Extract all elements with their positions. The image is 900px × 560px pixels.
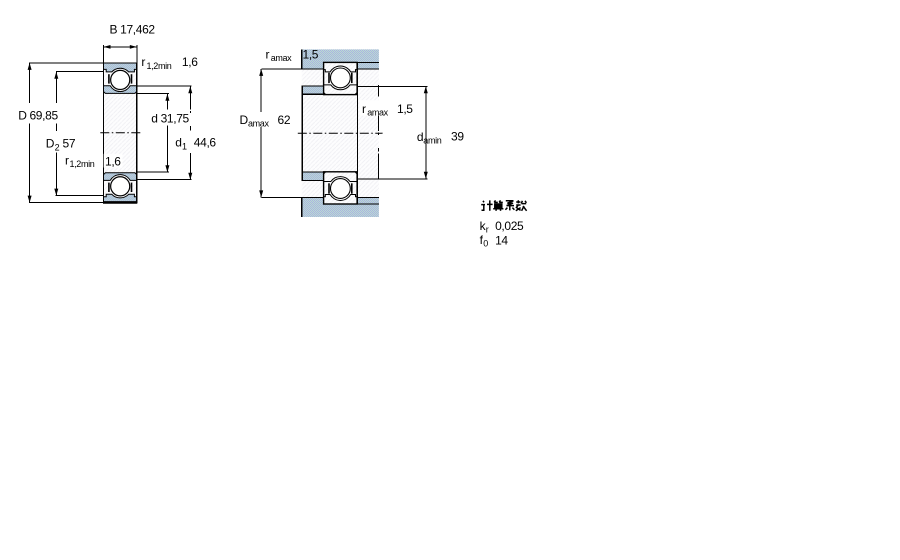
svg-text:0,025: 0,025 (495, 219, 524, 233)
svg-text:1: 1 (182, 142, 187, 152)
svg-text:1,6: 1,6 (105, 155, 121, 169)
svg-text:62: 62 (278, 113, 291, 127)
svg-text:57: 57 (63, 137, 76, 151)
svg-text:d: d (175, 136, 181, 150)
svg-text:r: r (141, 55, 145, 69)
svg-text:D 69,85: D 69,85 (18, 108, 58, 122)
svg-text:0: 0 (483, 239, 488, 249)
svg-text:2: 2 (55, 143, 60, 153)
svg-text:amax: amax (271, 53, 292, 63)
svg-text:14: 14 (495, 233, 508, 247)
svg-text:D: D (46, 137, 55, 151)
svg-text:r: r (362, 102, 366, 116)
svg-text:1,2min: 1,2min (70, 159, 95, 169)
svg-text:amax: amax (248, 118, 269, 128)
svg-text:1,5: 1,5 (303, 47, 319, 61)
svg-text:amax: amax (367, 108, 388, 118)
svg-text:r: r (266, 47, 270, 61)
svg-text:r: r (486, 224, 489, 234)
svg-text:44,6: 44,6 (194, 136, 217, 150)
svg-text:1,2min: 1,2min (147, 61, 172, 71)
svg-text:1,6: 1,6 (182, 55, 198, 69)
svg-text:39: 39 (451, 130, 464, 144)
svg-text:d: d (417, 130, 423, 144)
svg-text:amin: amin (423, 136, 441, 146)
svg-text:B 17,462: B 17,462 (110, 23, 156, 37)
svg-text:1,5: 1,5 (397, 102, 413, 116)
svg-text:r: r (65, 153, 69, 167)
svg-text:d 31,75: d 31,75 (151, 111, 189, 125)
